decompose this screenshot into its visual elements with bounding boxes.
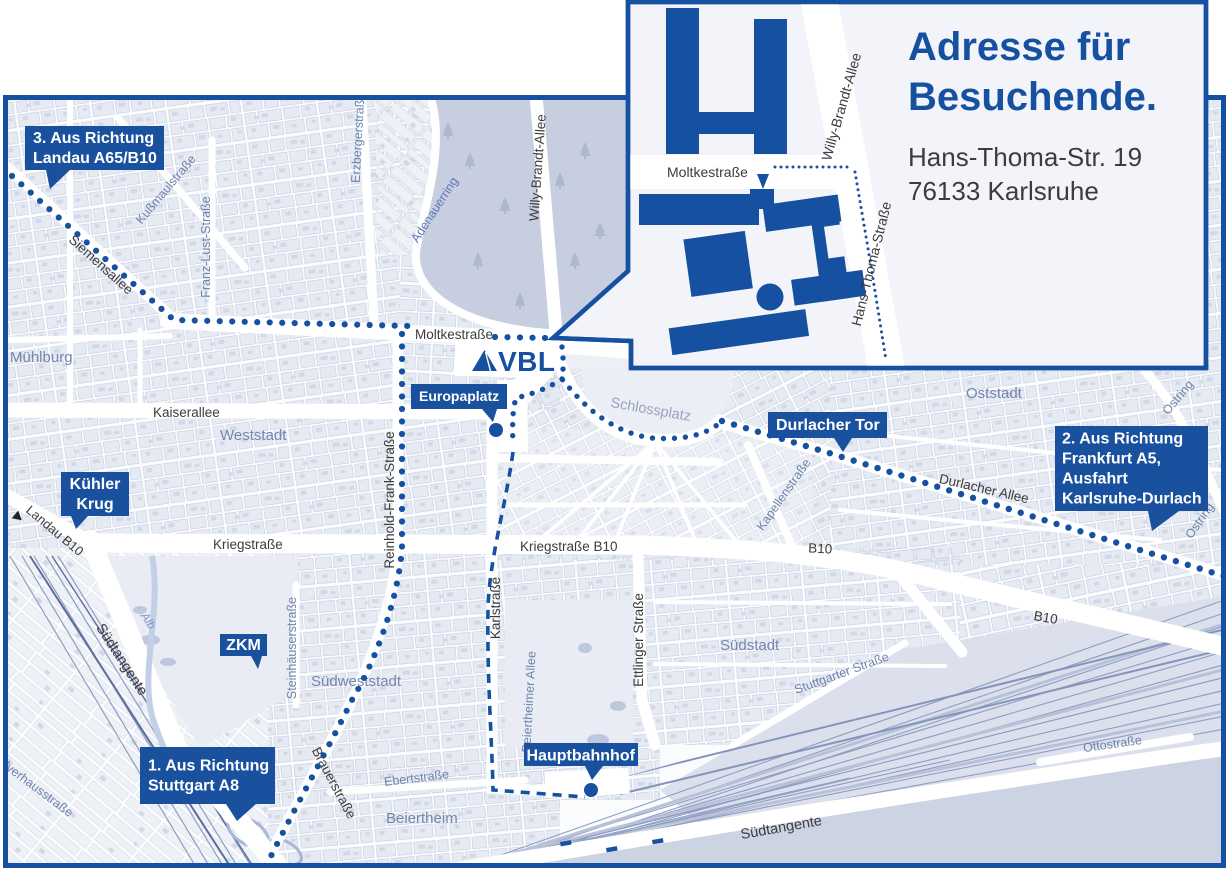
svg-text:Stuttgart A8: Stuttgart A8	[148, 778, 239, 795]
svg-text:Franz-Lust-Straße: Franz-Lust-Straße	[199, 196, 213, 297]
svg-text:Ettlinger Straße: Ettlinger Straße	[631, 593, 646, 687]
svg-text:Oststadt: Oststadt	[966, 385, 1023, 402]
svg-text:3. Aus Richtung: 3. Aus Richtung	[33, 130, 154, 147]
svg-text:Karlsruhe-Durlach: Karlsruhe-Durlach	[1062, 491, 1202, 508]
svg-text:Adresse für: Adresse für	[908, 25, 1130, 69]
svg-text:Mühlburg: Mühlburg	[10, 349, 73, 366]
svg-text:Moltkestraße: Moltkestraße	[667, 164, 748, 180]
svg-text:Frankfurt A5,: Frankfurt A5,	[1062, 451, 1161, 468]
svg-text:Europaplatz: Europaplatz	[419, 388, 499, 404]
svg-text:Hans-Thoma-Str. 19: Hans-Thoma-Str. 19	[908, 142, 1142, 172]
svg-text:2. Aus Richtung: 2. Aus Richtung	[1062, 431, 1183, 448]
svg-text:Krug: Krug	[76, 496, 113, 513]
svg-text:1. Aus Richtung: 1. Aus Richtung	[148, 758, 269, 775]
svg-text:Kühler: Kühler	[70, 476, 121, 493]
svg-text:Beiertheim: Beiertheim	[386, 810, 458, 827]
svg-text:VBL: VBL	[498, 346, 556, 377]
svg-text:Moltkestraße: Moltkestraße	[415, 327, 493, 342]
svg-text:Hauptbahnhof: Hauptbahnhof	[527, 748, 636, 765]
svg-text:Ausfahrt: Ausfahrt	[1062, 471, 1128, 488]
svg-text:Steinhäuserstraße: Steinhäuserstraße	[285, 597, 299, 699]
svg-text:Kriegstraße B10: Kriegstraße B10	[520, 539, 618, 554]
svg-text:ZKM: ZKM	[226, 637, 261, 654]
svg-text:Kriegstraße: Kriegstraße	[213, 537, 283, 552]
svg-text:Landau A65/B10: Landau A65/B10	[33, 150, 157, 167]
svg-text:Besuchende.: Besuchende.	[908, 75, 1157, 119]
svg-text:Kaiserallee: Kaiserallee	[153, 405, 220, 420]
svg-text:Reinhold-Frank-Straße: Reinhold-Frank-Straße	[382, 431, 397, 568]
svg-text:B10: B10	[808, 540, 833, 556]
svg-text:Weststadt: Weststadt	[220, 427, 287, 444]
svg-text:Südstadt: Südstadt	[720, 637, 780, 654]
svg-text:76133 Karlsruhe: 76133 Karlsruhe	[908, 176, 1099, 206]
svg-text:Durlacher Tor: Durlacher Tor	[776, 417, 880, 434]
